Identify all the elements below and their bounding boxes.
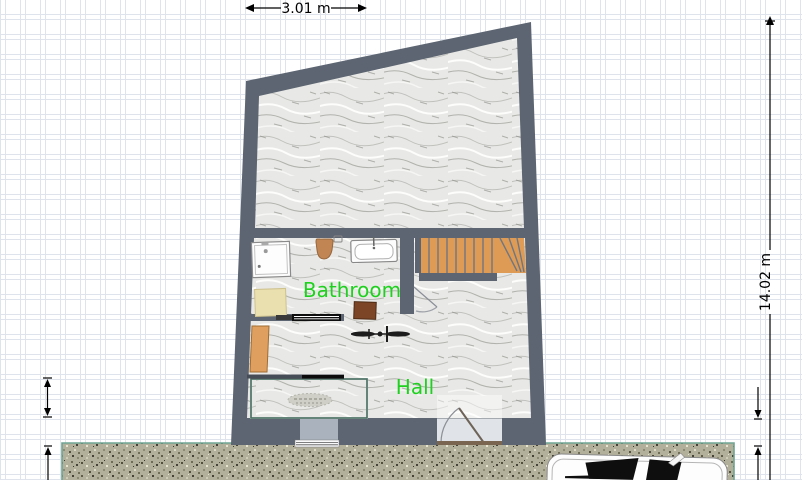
height-dimension-label: 14.02 m <box>758 253 774 311</box>
stool[interactable] <box>354 302 377 320</box>
closet-stamp <box>288 394 332 407</box>
shower[interactable] <box>251 241 290 277</box>
bath-mat[interactable] <box>255 288 287 316</box>
interior-wall-horizontal[interactable] <box>254 228 525 238</box>
width-dimension-label: 3.01 m <box>281 1 330 17</box>
staircase[interactable] <box>415 238 526 273</box>
bathroom-room-label[interactable]: Bathroom <box>303 278 401 302</box>
width-dimension: 3.01 m <box>245 1 367 17</box>
floor-plan-drawing[interactable]: Bathroom Hall 3.01 m 14.02 m <box>0 0 802 480</box>
side-door[interactable] <box>295 419 339 447</box>
left-dimension-arrows <box>43 378 52 480</box>
right-dimension-arrows <box>754 387 762 480</box>
entry-door[interactable] <box>437 395 502 445</box>
sink[interactable] <box>351 236 398 262</box>
floor-plan-editor-canvas[interactable]: Bathroom Hall 3.01 m 14.02 m <box>0 0 802 480</box>
stair-wall[interactable] <box>419 273 497 281</box>
bathroom-right-wall[interactable] <box>400 238 414 314</box>
hall-room-label[interactable]: Hall <box>396 375 434 399</box>
radiator[interactable] <box>276 314 341 321</box>
cabinet[interactable] <box>250 326 269 372</box>
